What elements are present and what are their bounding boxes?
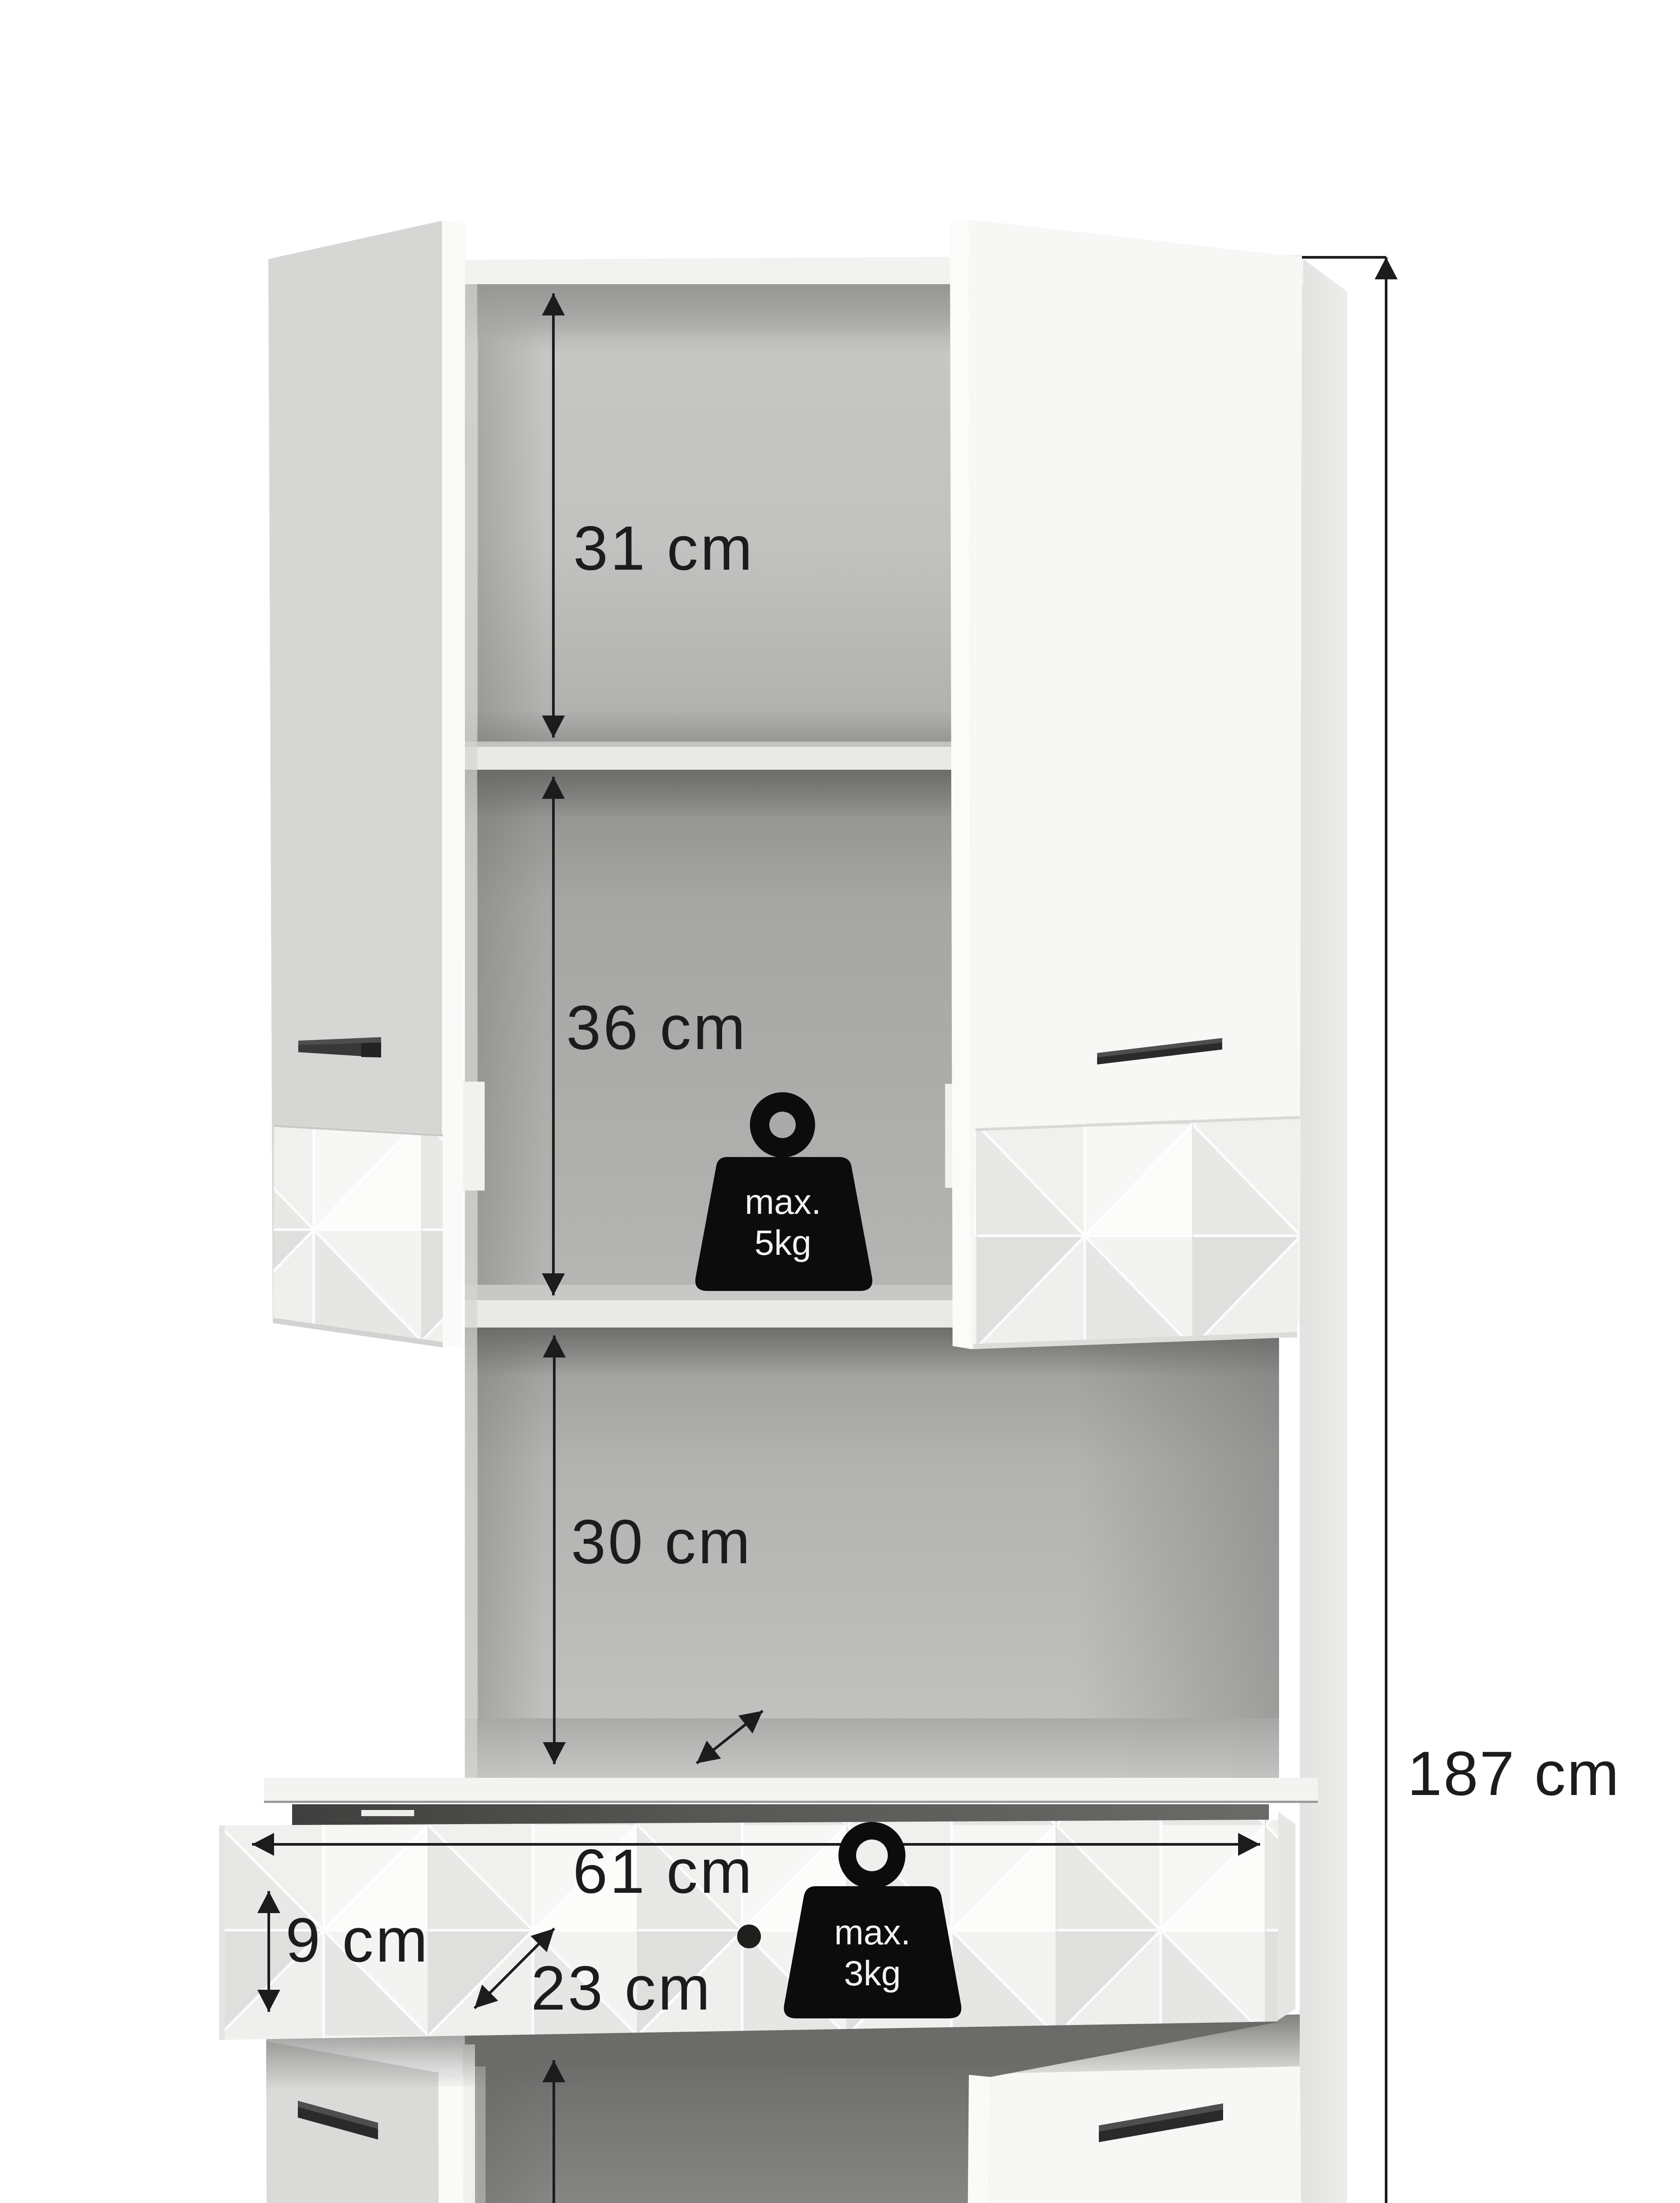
svg-text:23 cm: 23 cm xyxy=(531,1953,712,2023)
svg-text:31 cm: 31 cm xyxy=(573,513,755,583)
svg-text:30 cm: 30 cm xyxy=(571,1507,753,1577)
svg-text:max.: max. xyxy=(834,1913,910,1952)
svg-text:3kg: 3kg xyxy=(844,1954,901,1993)
svg-text:61 cm: 61 cm xyxy=(573,1836,754,1906)
svg-text:5kg: 5kg xyxy=(755,1223,812,1262)
svg-text:9 cm: 9 cm xyxy=(286,1905,430,1975)
svg-text:max.: max. xyxy=(745,1182,821,1221)
svg-text:36 cm: 36 cm xyxy=(566,993,748,1063)
svg-text:187 cm: 187 cm xyxy=(1407,1739,1621,1809)
